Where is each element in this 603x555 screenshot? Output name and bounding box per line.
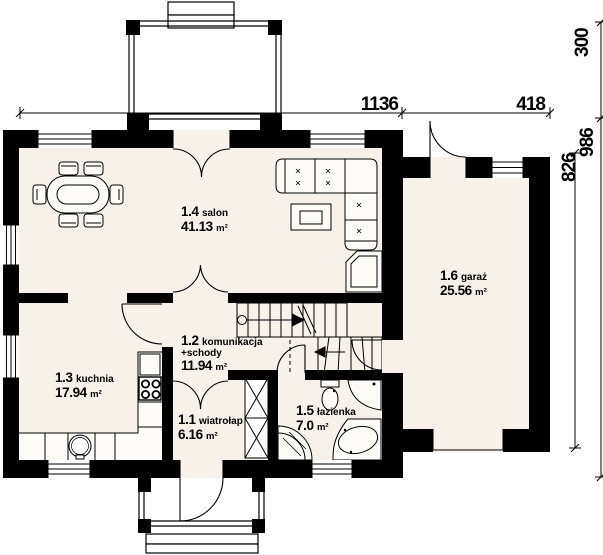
room-name: garaż — [461, 272, 487, 283]
room-id: 1.1 — [178, 412, 196, 427]
garage-wall-right — [529, 157, 550, 452]
wall-right-upper — [382, 130, 403, 340]
room-label-salon: 1.4 salon 41.13 m² — [181, 205, 228, 234]
room-id: 1.6 — [440, 268, 458, 283]
garage-wall-top — [403, 157, 550, 178]
room-label-garaz: 1.6 garaż 25.56 m² — [440, 269, 487, 298]
room-area: 25.56 — [440, 283, 472, 298]
room-unit: m² — [216, 223, 228, 234]
room-unit: m² — [317, 422, 329, 433]
wall-salon-hall — [127, 293, 173, 303]
porch-posts — [138, 478, 265, 533]
wall-hall-bath — [305, 370, 382, 380]
room-unit: m² — [206, 431, 218, 442]
floor-plan-drawing: 1136 418 300 986 826 — [0, 0, 603, 555]
room-area: 6.16 — [178, 427, 203, 442]
entrance-door — [180, 460, 223, 521]
room-label-komunikacja: 1.2 komunikacja +schody 11.94 m² — [181, 334, 263, 373]
coffee-table — [291, 204, 331, 230]
wall-kitchen-hall — [162, 347, 173, 460]
dim-house-depth: 986 — [577, 128, 598, 157]
room-unit: m² — [215, 362, 227, 373]
garage-wall-bottom-right — [503, 429, 550, 452]
window-top-left — [38, 130, 92, 148]
room-unit: m² — [475, 287, 487, 298]
room-id: 1.4 — [181, 204, 199, 219]
room-label-wiatrolap: 1.1 wiatrołap 6.16 m² — [178, 413, 243, 442]
dim-garage-width: 418 — [516, 94, 545, 115]
wall-left — [3, 130, 19, 478]
room-id: 1.3 — [55, 370, 73, 385]
room-label-lazienka: 1.5 łazienka 7.0 m² — [296, 404, 356, 433]
window-left-salon — [3, 225, 19, 265]
wardrobe — [245, 378, 268, 458]
dim-garage-depth: 826 — [559, 153, 580, 182]
window-bottom-kitchen — [48, 460, 90, 478]
room-id: 1.5 — [296, 403, 314, 418]
kitchen-cabinet — [140, 354, 160, 375]
window-top-right — [310, 130, 365, 148]
room-area: 41.13 — [181, 219, 213, 234]
floor-plan: 1136 418 300 986 826 1.4 salon 41.13 m² … — [0, 0, 603, 555]
garage-side-door — [430, 121, 466, 178]
window-garage — [492, 157, 523, 178]
stove — [139, 377, 161, 400]
window-left-kitchen — [3, 335, 19, 378]
chair — [84, 214, 103, 227]
window-bottom-bath — [312, 460, 352, 478]
dim-line-right-inner — [569, 149, 581, 452]
dim-main-width: 1136 — [361, 94, 399, 115]
terrace — [126, 2, 282, 131]
room-unit: m² — [90, 389, 102, 400]
porch-step — [146, 534, 258, 544]
room-name: wiatrołap — [199, 416, 243, 427]
room-area: 11.94 — [181, 358, 212, 373]
room-name: komunikacja — [202, 337, 263, 348]
room-label-kuchnia: 1.3 kuchnia 17.94 m² — [55, 371, 114, 400]
chair — [59, 162, 78, 175]
chair — [59, 214, 78, 227]
room-area: 17.94 — [55, 385, 87, 400]
dim-line-top — [16, 107, 554, 119]
wall-right-lower — [382, 373, 403, 478]
wall-salon-stairs — [228, 293, 382, 303]
dim-line-right-outer — [595, 18, 603, 481]
chair — [84, 162, 103, 175]
garage-wall-bottom-left — [403, 429, 433, 452]
wall-vestibule-bath — [268, 370, 278, 460]
room-name: kuchnia — [76, 374, 114, 385]
chair — [33, 185, 46, 204]
room-id: 1.2 — [181, 333, 199, 348]
room-name: salon — [202, 208, 228, 219]
wall-salon-kitchen — [19, 293, 68, 303]
dining-table — [47, 176, 109, 213]
room-area: 7.0 — [296, 418, 314, 433]
chair — [110, 185, 123, 204]
room-name: łazienka — [317, 407, 356, 418]
terrace-step — [168, 2, 234, 15]
fireplace — [346, 251, 382, 292]
porch-step — [146, 544, 258, 553]
dim-terrace-depth: 300 — [572, 28, 593, 57]
